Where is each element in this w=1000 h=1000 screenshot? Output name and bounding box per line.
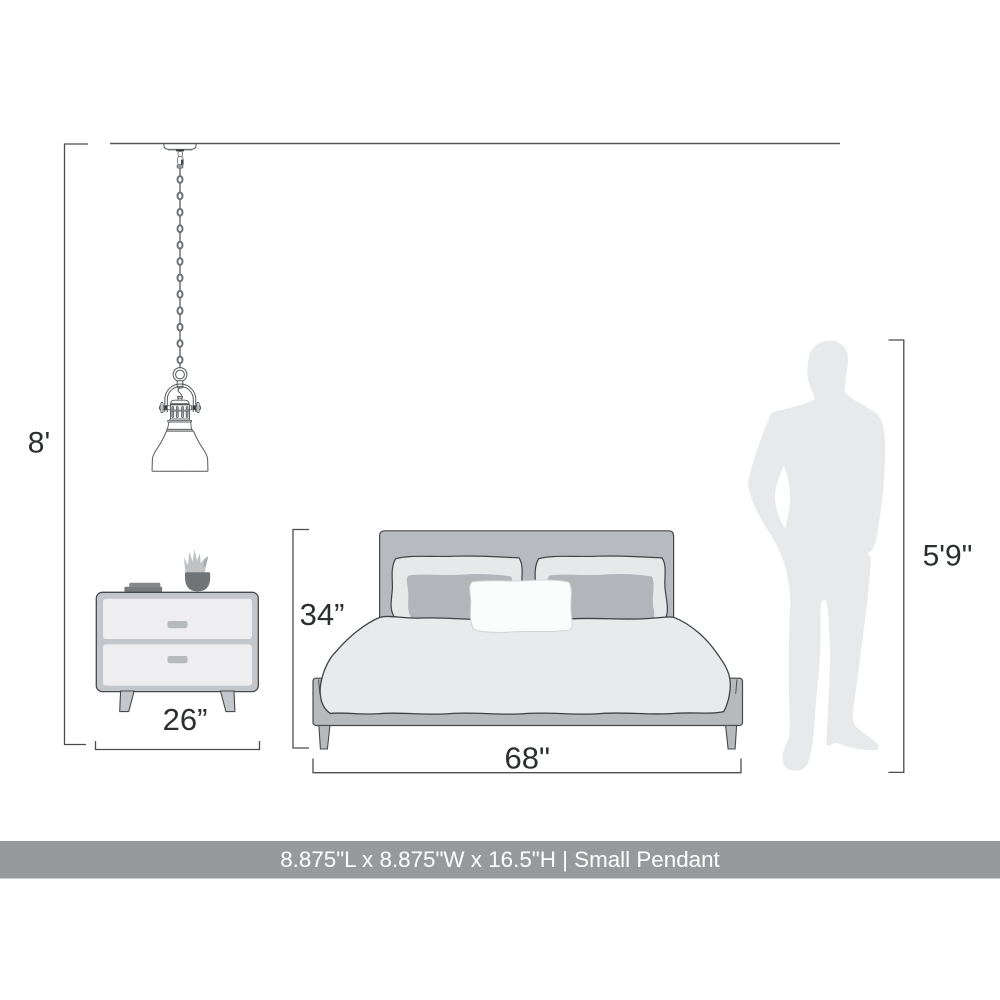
svg-text:8': 8' [28, 427, 50, 460]
svg-text:68": 68" [505, 741, 551, 776]
svg-text:8.875"L x 8.875"W x 16.5"H | S: 8.875"L x 8.875"W x 16.5"H | Small Penda… [280, 847, 720, 872]
svg-text:26”: 26” [163, 702, 208, 737]
svg-text:34”: 34” [300, 597, 345, 632]
svg-text:5'9": 5'9" [923, 540, 973, 573]
